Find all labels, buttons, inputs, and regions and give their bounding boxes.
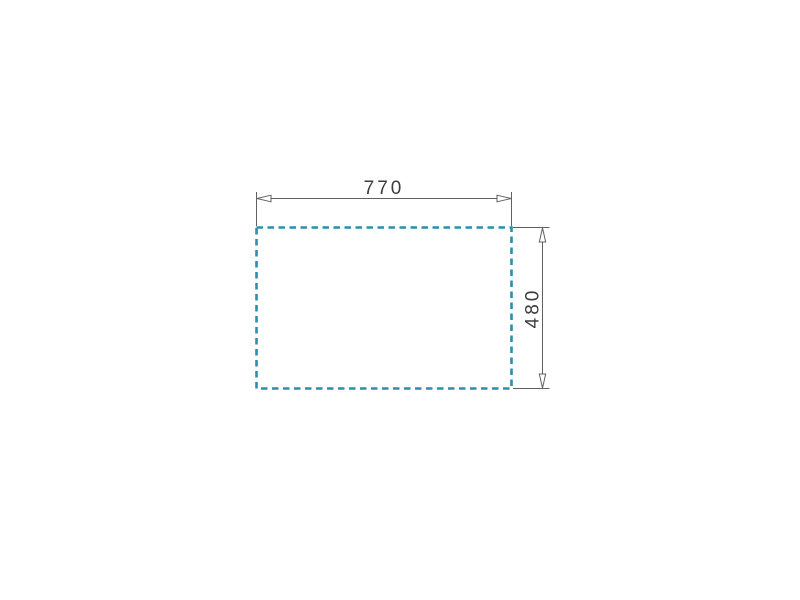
height-dimension-label: 480 — [523, 288, 544, 329]
arrowhead-right-icon — [497, 195, 511, 202]
arrowhead-up-icon — [539, 228, 545, 242]
drawing-canvas: 770 480 — [0, 0, 800, 600]
arrowhead-down-icon — [539, 374, 545, 388]
arrowhead-left-icon — [257, 195, 271, 202]
width-dimension-label: 770 — [364, 178, 405, 199]
cutout-dashed-outline — [257, 228, 512, 389]
technical-drawing: 770 480 — [0, 0, 800, 600]
